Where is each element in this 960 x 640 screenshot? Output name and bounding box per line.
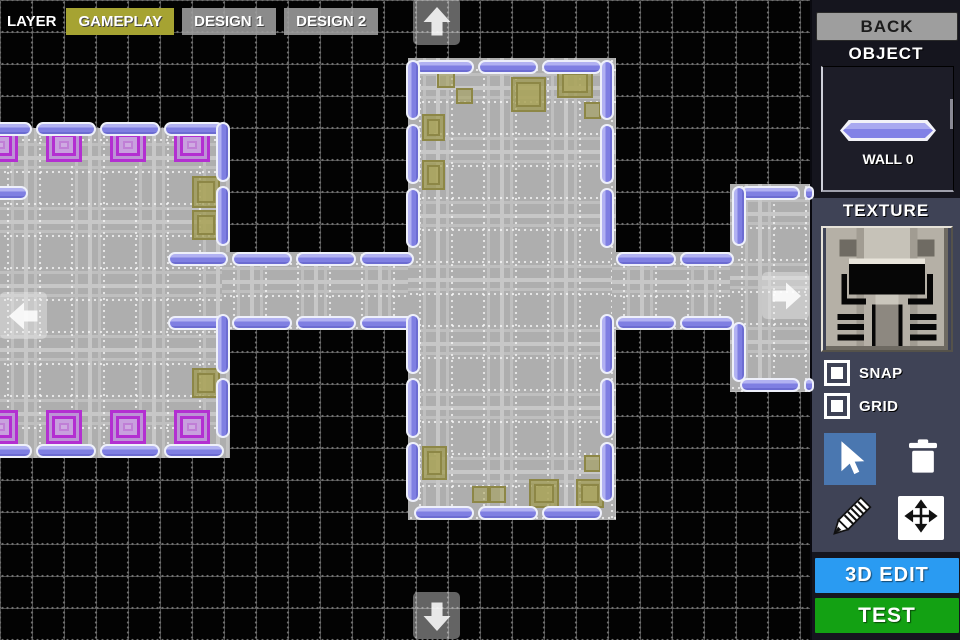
layer-tab-design-2[interactable]: DESIGN 2 bbox=[284, 8, 378, 35]
wall-segment[interactable] bbox=[680, 252, 734, 266]
trash-icon bbox=[902, 435, 944, 482]
wall-segment[interactable] bbox=[406, 378, 420, 438]
wall-segment[interactable] bbox=[414, 60, 474, 74]
wall-segment[interactable] bbox=[216, 314, 230, 374]
layer-tabs: GAMEPLAYDESIGN 1DESIGN 2 bbox=[66, 8, 378, 35]
wall-segment[interactable] bbox=[732, 322, 746, 382]
wall-segment[interactable] bbox=[804, 186, 814, 200]
arrow-down-icon bbox=[418, 597, 456, 635]
draw-tool-button[interactable] bbox=[826, 496, 874, 544]
map-prop-sq[interactable] bbox=[584, 455, 601, 472]
grid-toggle-row: GRID bbox=[824, 393, 899, 419]
layer-label: LAYER bbox=[5, 9, 58, 34]
texture-section-title: TEXTURE bbox=[812, 201, 960, 221]
wall-segment[interactable] bbox=[100, 444, 160, 458]
arrow-left-icon bbox=[5, 297, 43, 335]
move-tool-button[interactable] bbox=[898, 496, 944, 540]
map-layer bbox=[0, 0, 810, 640]
wall-segment[interactable] bbox=[616, 316, 676, 330]
wall-segment[interactable] bbox=[168, 252, 228, 266]
texture-preview[interactable] bbox=[821, 226, 953, 352]
wall-segment[interactable] bbox=[804, 378, 814, 392]
map-prop-door[interactable] bbox=[422, 160, 445, 190]
wall-segment[interactable] bbox=[600, 188, 614, 248]
select-tool-button[interactable] bbox=[824, 433, 876, 485]
editor-sidebar: BACK OBJECT WALL 0 TEXTURE bbox=[810, 0, 960, 640]
gameplay-pad[interactable] bbox=[110, 410, 146, 444]
wall-segment[interactable] bbox=[732, 186, 746, 246]
level-editor: LAYER GAMEPLAYDESIGN 1DESIGN 2 BACK bbox=[0, 0, 960, 640]
map-prop-sq[interactable] bbox=[472, 486, 489, 503]
snap-checkbox[interactable] bbox=[824, 360, 850, 386]
wall-segment[interactable] bbox=[0, 444, 32, 458]
layer-tab-design-1[interactable]: DESIGN 1 bbox=[182, 8, 276, 35]
scroll-down-button[interactable] bbox=[413, 592, 460, 639]
wall-segment[interactable] bbox=[296, 316, 356, 330]
back-button[interactable]: BACK bbox=[816, 12, 958, 41]
wall-segment[interactable] bbox=[164, 444, 224, 458]
map-prop-box[interactable] bbox=[511, 77, 546, 112]
object-preview-box[interactable]: WALL 0 bbox=[821, 66, 954, 192]
wall-segment[interactable] bbox=[406, 60, 420, 120]
snap-toggle-row: SNAP bbox=[824, 360, 903, 386]
scroll-right-button[interactable] bbox=[762, 272, 809, 319]
test-button[interactable]: TEST bbox=[815, 598, 959, 633]
grid-checkbox[interactable] bbox=[824, 393, 850, 419]
map-prop-door[interactable] bbox=[422, 114, 445, 141]
texture-image bbox=[823, 228, 951, 350]
map-canvas[interactable]: LAYER GAMEPLAYDESIGN 1DESIGN 2 bbox=[0, 0, 810, 640]
move-icon bbox=[902, 497, 940, 540]
gameplay-pad[interactable] bbox=[0, 410, 18, 444]
wall-segment[interactable] bbox=[36, 444, 96, 458]
wall-segment[interactable] bbox=[740, 378, 800, 392]
delete-tool-button[interactable] bbox=[900, 435, 946, 481]
wall-segment[interactable] bbox=[600, 442, 614, 502]
wall-segment[interactable] bbox=[164, 122, 224, 136]
wall-segment[interactable] bbox=[232, 252, 292, 266]
wall-segment[interactable] bbox=[360, 252, 414, 266]
wall-segment[interactable] bbox=[100, 122, 160, 136]
grid-label: GRID bbox=[859, 398, 899, 415]
wall-segment[interactable] bbox=[0, 122, 32, 136]
wall-segment[interactable] bbox=[478, 506, 538, 520]
map-prop-sq[interactable] bbox=[584, 102, 601, 119]
snap-label: SNAP bbox=[859, 365, 903, 382]
wall-segment[interactable] bbox=[232, 316, 292, 330]
scroll-up-button[interactable] bbox=[413, 0, 460, 45]
wall-segment[interactable] bbox=[296, 252, 356, 266]
wall-segment[interactable] bbox=[216, 122, 230, 182]
wall-segment[interactable] bbox=[478, 60, 538, 74]
wall-object-icon bbox=[840, 120, 936, 141]
arrow-right-icon bbox=[767, 277, 805, 315]
wall-segment[interactable] bbox=[216, 378, 230, 438]
scroll-left-button[interactable] bbox=[0, 292, 47, 339]
object-panel: BACK OBJECT WALL 0 bbox=[812, 0, 960, 198]
layer-tab-gameplay[interactable]: GAMEPLAY bbox=[66, 8, 174, 35]
wall-segment[interactable] bbox=[406, 314, 420, 374]
wall-segment[interactable] bbox=[600, 60, 614, 120]
wall-segment[interactable] bbox=[600, 378, 614, 438]
object-scrollbar[interactable] bbox=[950, 99, 953, 129]
wall-segment[interactable] bbox=[542, 60, 602, 74]
wall-segment[interactable] bbox=[600, 124, 614, 184]
object-name: WALL 0 bbox=[823, 151, 953, 167]
wall-segment[interactable] bbox=[216, 186, 230, 246]
wall-segment[interactable] bbox=[406, 188, 420, 248]
wall-segment[interactable] bbox=[542, 506, 602, 520]
gameplay-pad[interactable] bbox=[46, 410, 82, 444]
cursor-icon bbox=[830, 437, 870, 482]
wall-segment[interactable] bbox=[406, 442, 420, 502]
layer-bar: LAYER GAMEPLAYDESIGN 1DESIGN 2 bbox=[5, 8, 378, 35]
wall-segment[interactable] bbox=[600, 314, 614, 374]
wall-segment[interactable] bbox=[406, 124, 420, 184]
map-prop-sq[interactable] bbox=[489, 486, 506, 503]
map-prop-sq[interactable] bbox=[456, 88, 473, 104]
wall-segment[interactable] bbox=[616, 252, 676, 266]
3d-edit-button[interactable]: 3D EDIT bbox=[815, 558, 959, 593]
wall-segment[interactable] bbox=[414, 506, 474, 520]
wall-segment[interactable] bbox=[680, 316, 734, 330]
wall-segment[interactable] bbox=[0, 186, 28, 200]
pencil-icon bbox=[827, 495, 873, 546]
wall-segment[interactable] bbox=[740, 186, 800, 200]
arrow-up-icon bbox=[418, 3, 456, 41]
wall-segment[interactable] bbox=[36, 122, 96, 136]
action-panel: 3D EDIT TEST bbox=[812, 552, 960, 640]
gameplay-pad[interactable] bbox=[174, 410, 210, 444]
map-prop-box[interactable] bbox=[529, 479, 559, 508]
object-section-title: OBJECT bbox=[812, 44, 960, 64]
map-prop-door[interactable] bbox=[422, 446, 447, 480]
